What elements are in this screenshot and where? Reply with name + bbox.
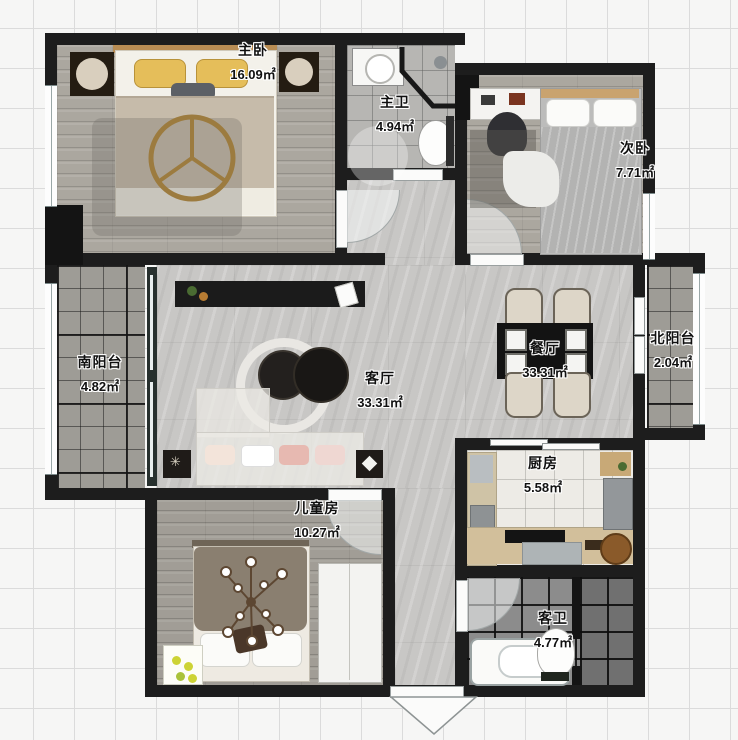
tv-console[interactable] (175, 281, 365, 307)
wardrobe-door-line (349, 564, 350, 680)
nightstand-lamp (76, 58, 108, 90)
sofa-pillow-3 (279, 445, 309, 465)
wall-kitchen-bath-divider (455, 565, 645, 577)
window-second-bedroom (643, 193, 655, 260)
place-setting-2 (565, 329, 587, 351)
wall-kids-right (383, 488, 395, 697)
column-left-mid (45, 205, 83, 265)
room-north-balcony-floor[interactable] (647, 265, 693, 428)
north-balcony-door-panel-top[interactable] (634, 297, 645, 335)
side-table-decor-star: ✳ (170, 454, 181, 470)
second-bed-pillow-right (593, 99, 637, 127)
kids-wardrobe[interactable] (318, 563, 382, 683)
kitchen-sink-stainless (522, 542, 582, 565)
kids-bed[interactable] (193, 546, 310, 682)
entry-door-swing (391, 697, 476, 734)
kitchen-shelf-plant (600, 452, 631, 476)
place-setting-1 (505, 329, 527, 351)
guest-bath-divider-2 (572, 666, 580, 685)
kids-rug-flowers (163, 645, 203, 685)
second-bedroom-door-opening[interactable] (470, 254, 524, 266)
sliding-door-glass-2 (150, 382, 153, 477)
kitchen-fridge[interactable] (603, 478, 633, 530)
wall-bottom-right (455, 685, 645, 697)
kids-bed-blanket (194, 547, 307, 631)
window-north-balcony (693, 273, 705, 425)
side-table-left[interactable]: ✳ (163, 450, 191, 478)
kitchen-fruit-basket (600, 533, 632, 565)
coffee-table-dark-2[interactable] (293, 347, 349, 403)
guest-bath-divider (572, 577, 580, 639)
window-south-balcony (45, 283, 57, 475)
master-bath-vanity[interactable] (352, 48, 404, 86)
wall-right-lower (633, 428, 645, 697)
desk-books (509, 93, 525, 105)
dining-table[interactable] (497, 323, 593, 379)
kitchen-sliding-door-panel-right[interactable] (542, 443, 600, 450)
side-table-right[interactable] (356, 450, 383, 478)
desk-monitor (481, 95, 495, 105)
second-bed-fold (503, 151, 559, 207)
master-nightstand-left[interactable] (70, 52, 114, 96)
kitchen-sliding-door-panel-left[interactable] (490, 439, 548, 446)
console-plant-green (187, 286, 197, 296)
console-plant-orange (199, 292, 208, 301)
floorplan-canvas: ✳ (0, 0, 738, 740)
entry-door-opening[interactable] (390, 686, 464, 698)
plant-dot (618, 462, 627, 471)
window-master-bedroom (45, 85, 57, 207)
master-bath-toilet-tank (446, 116, 454, 166)
shower-head (434, 56, 447, 69)
dining-chair-bottom-right[interactable] (553, 372, 591, 418)
vanity-basin (365, 54, 395, 84)
master-bedroom-rug[interactable] (92, 118, 242, 236)
master-nightstand-right[interactable] (279, 52, 319, 92)
second-bed-headboard (541, 89, 639, 98)
nightstand-lamp-2 (285, 58, 313, 86)
sofa-chaise[interactable] (196, 388, 270, 438)
rug-flower-dot (172, 656, 181, 665)
room-south-balcony-floor[interactable] (57, 265, 145, 488)
guest-bath-toilet[interactable] (537, 628, 575, 676)
master-bath-rug (348, 126, 408, 186)
sofa-main[interactable] (196, 432, 364, 486)
wall-south-balcony-bottom (45, 488, 157, 500)
wall-top-main (45, 33, 465, 45)
wall-top-second-bed (455, 63, 655, 75)
wall-left-lower (145, 488, 157, 697)
second-bed[interactable] (540, 88, 642, 255)
side-table-decor-diamond (362, 456, 378, 472)
hallway-lower-floor[interactable] (395, 488, 455, 685)
sofa-pillow-1 (205, 445, 235, 465)
guest-bath-shower-zone (580, 577, 633, 685)
sofa-pillow-4 (315, 445, 345, 465)
wall-bed-living-divider (45, 253, 385, 265)
dining-chair-bottom-left[interactable] (505, 372, 543, 418)
sliding-door-glass-1 (150, 275, 153, 370)
sofa-pillow-2 (241, 445, 275, 467)
guest-bath-toilet-base (541, 672, 569, 681)
second-bed-pillow-left (546, 99, 590, 127)
kitchen-cabinet-gray (470, 455, 493, 483)
south-balcony-sliding-door[interactable] (147, 267, 157, 486)
north-balcony-door-panel-bottom[interactable] (634, 336, 645, 374)
console-paper (334, 282, 358, 308)
